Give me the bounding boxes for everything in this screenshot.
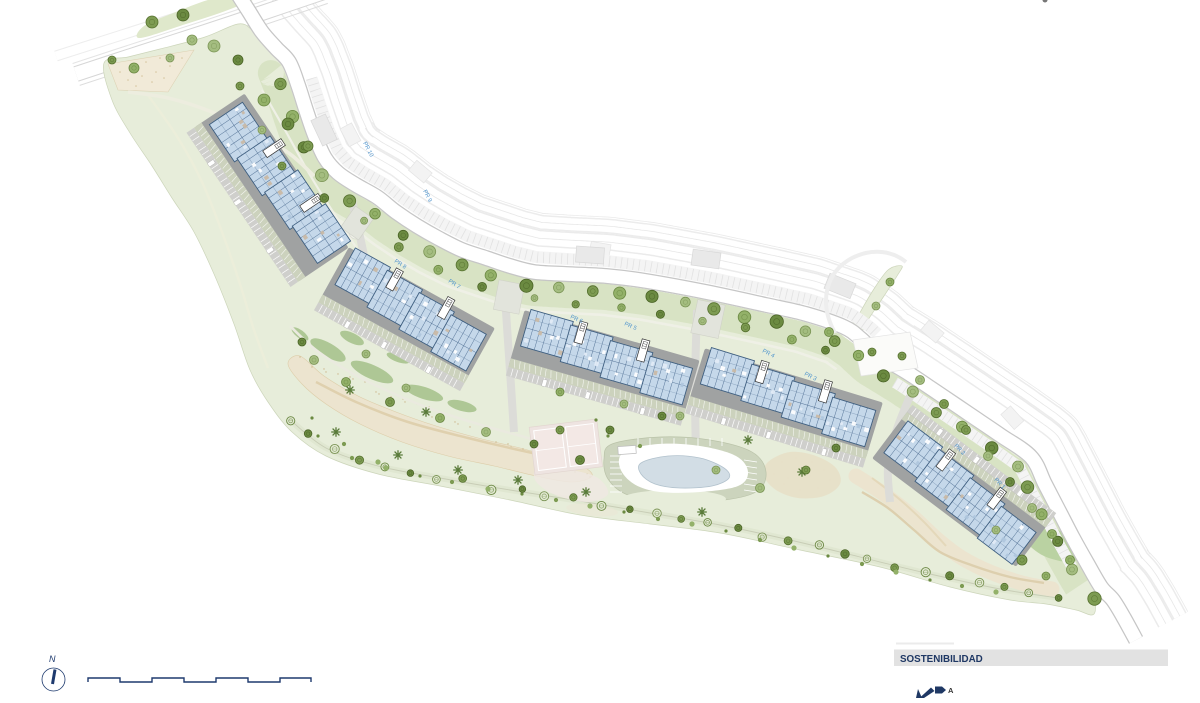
svg-text:A: A: [948, 686, 954, 695]
svg-text:N: N: [49, 654, 56, 664]
svg-text:SOSTENIBILIDAD: SOSTENIBILIDAD: [900, 654, 983, 665]
